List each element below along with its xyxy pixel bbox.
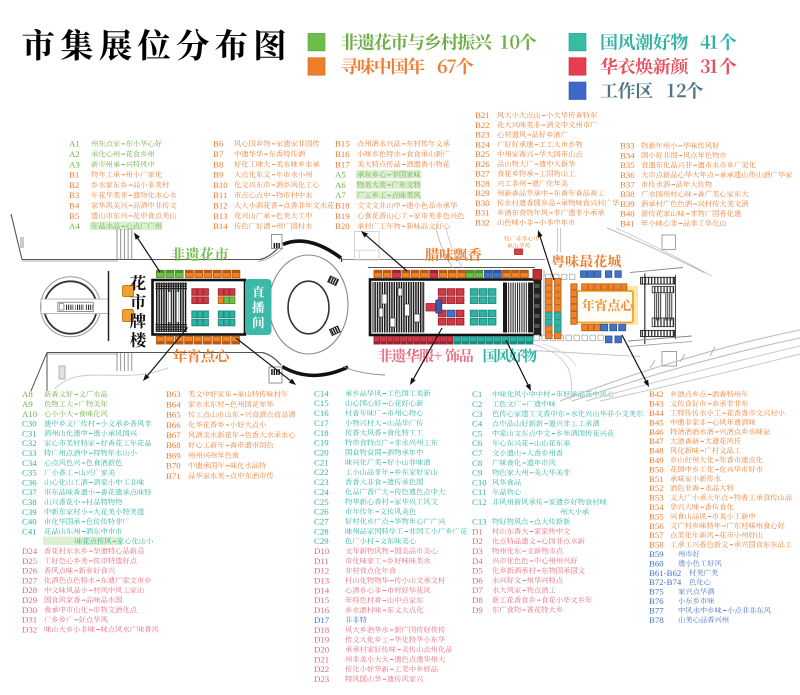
svg-text:C28: C28	[314, 526, 329, 536]
svg-text:B30: B30	[475, 198, 490, 208]
svg-text:B70: B70	[166, 461, 181, 471]
svg-text:B27: B27	[475, 169, 490, 179]
svg-text:D11: D11	[314, 556, 329, 566]
svg-text:A5: A5	[335, 170, 346, 180]
svg-text:C27: C27	[314, 516, 329, 526]
svg-text:C33: C33	[22, 448, 37, 458]
svg-text:B9: B9	[213, 170, 224, 180]
svg-text:D25: D25	[22, 556, 38, 566]
svg-text:D3: D3	[472, 546, 483, 556]
svg-text:B31: B31	[475, 208, 490, 218]
svg-text:D31: D31	[22, 615, 37, 625]
svg-text:C39: C39	[22, 507, 37, 517]
svg-text:B3: B3	[69, 190, 80, 200]
svg-text:B19: B19	[335, 211, 350, 221]
svg-text:C32: C32	[22, 438, 37, 448]
svg-text:B1: B1	[69, 170, 79, 180]
svg-text:B2: B2	[69, 180, 79, 190]
svg-text:C17: C17	[314, 418, 329, 428]
svg-text:D13: D13	[314, 576, 330, 586]
svg-text:A3: A3	[69, 159, 80, 169]
svg-text:D24: D24	[22, 546, 38, 556]
svg-text:D14: D14	[314, 585, 330, 595]
svg-text:D20: D20	[314, 645, 330, 655]
svg-text:B41: B41	[620, 218, 635, 228]
svg-text:C20: C20	[314, 448, 329, 458]
svg-text:D21: D21	[314, 654, 329, 664]
svg-text:B14: B14	[213, 221, 228, 231]
svg-text:B39: B39	[620, 199, 635, 209]
svg-text:C22: C22	[314, 467, 329, 477]
svg-text:C8: C8	[472, 458, 483, 468]
svg-text:D18: D18	[314, 625, 330, 635]
svg-text:C31: C31	[22, 428, 37, 438]
svg-text:A7: A7	[335, 190, 346, 200]
svg-text:D26: D26	[22, 566, 38, 576]
svg-text:D8: D8	[472, 595, 483, 605]
svg-text:C41: C41	[22, 526, 37, 536]
svg-text:B12: B12	[213, 201, 228, 211]
svg-text:C21: C21	[314, 457, 329, 467]
svg-text:C12: C12	[472, 497, 487, 507]
svg-text:B37: B37	[620, 180, 635, 190]
svg-text:B64: B64	[166, 399, 181, 409]
svg-text:B33: B33	[620, 141, 635, 151]
svg-text:B16: B16	[335, 149, 350, 159]
svg-text:B66: B66	[166, 420, 181, 430]
svg-text:B28: B28	[475, 179, 490, 189]
svg-text:A9: A9	[22, 399, 33, 409]
svg-text:C38: C38	[22, 497, 37, 507]
svg-text:D23: D23	[314, 674, 330, 684]
svg-text:D16: D16	[314, 605, 330, 615]
svg-text:A1: A1	[69, 139, 80, 149]
svg-text:D7: D7	[472, 585, 483, 595]
svg-text:C10: C10	[472, 477, 487, 487]
svg-text:C2: C2	[472, 399, 482, 409]
svg-text:B25: B25	[475, 149, 490, 159]
svg-text:C35: C35	[22, 468, 37, 478]
svg-text:D19: D19	[314, 635, 330, 645]
svg-text:B29: B29	[475, 188, 490, 198]
svg-text:C14: C14	[314, 388, 329, 398]
svg-text:C30: C30	[22, 419, 37, 429]
svg-text:B8: B8	[213, 159, 224, 169]
svg-text:B69: B69	[166, 450, 181, 460]
svg-text:D9: D9	[472, 605, 483, 615]
svg-text:B68: B68	[166, 440, 181, 450]
svg-text:C26: C26	[314, 507, 329, 517]
svg-text:B17: B17	[335, 159, 350, 169]
svg-text:A2: A2	[69, 149, 80, 159]
svg-text:B18: B18	[335, 201, 350, 211]
svg-text:C24: C24	[314, 487, 329, 497]
svg-text:B26: B26	[475, 159, 490, 169]
svg-text:C7: C7	[472, 448, 483, 458]
svg-text:B11: B11	[213, 190, 227, 200]
svg-text:B78: B78	[649, 615, 664, 625]
svg-text:B71: B71	[166, 471, 181, 481]
svg-text:A10: A10	[22, 409, 38, 419]
svg-text:C13: C13	[472, 517, 487, 527]
svg-text:A6: A6	[335, 180, 346, 190]
svg-text:C40: C40	[22, 517, 37, 527]
svg-text:D17: D17	[314, 615, 330, 625]
svg-text:B15: B15	[335, 139, 350, 149]
svg-text:D4: D4	[472, 556, 483, 566]
svg-text:B4: B4	[69, 201, 80, 211]
svg-text:B7: B7	[213, 149, 224, 159]
svg-text:C16: C16	[314, 408, 329, 418]
svg-text:B22: B22	[475, 120, 490, 130]
svg-text:B36: B36	[620, 170, 635, 180]
svg-text:D12: D12	[314, 566, 329, 576]
svg-text:D32: D32	[22, 624, 37, 634]
svg-text:C25: C25	[314, 497, 329, 507]
svg-text:C23: C23	[314, 477, 329, 487]
svg-text:C5: C5	[472, 428, 483, 438]
svg-text:D5: D5	[472, 566, 483, 576]
svg-text:C29: C29	[314, 536, 329, 546]
svg-text:B34: B34	[620, 150, 635, 160]
svg-text:B35: B35	[620, 160, 635, 170]
svg-text:D28: D28	[22, 585, 38, 595]
svg-text:C37: C37	[22, 487, 37, 497]
svg-text:D29: D29	[22, 595, 38, 605]
svg-text:B6: B6	[213, 139, 224, 149]
svg-text:B67: B67	[166, 430, 181, 440]
svg-text:C18: C18	[314, 428, 329, 438]
svg-text:B10: B10	[213, 180, 228, 190]
svg-text:B13: B13	[213, 211, 228, 221]
svg-text:B65: B65	[166, 410, 181, 420]
svg-text:C4: C4	[472, 419, 483, 429]
svg-text:C11: C11	[472, 487, 486, 497]
svg-text:D1: D1	[472, 526, 483, 536]
svg-text:C36: C36	[22, 477, 37, 487]
svg-text:D15: D15	[314, 595, 330, 605]
svg-text:B21: B21	[475, 110, 490, 120]
svg-text:C3: C3	[472, 409, 483, 419]
svg-text:C34: C34	[22, 458, 37, 468]
svg-text:B38: B38	[620, 189, 635, 199]
svg-text:B63: B63	[166, 389, 181, 399]
svg-text:D22: D22	[314, 664, 329, 674]
svg-text:C1: C1	[472, 389, 482, 399]
svg-text:D30: D30	[22, 605, 38, 615]
svg-text:C15: C15	[314, 398, 329, 408]
svg-text:B5: B5	[69, 211, 80, 221]
svg-text:B23: B23	[475, 130, 490, 140]
svg-text:B40: B40	[620, 209, 635, 219]
svg-text:D27: D27	[22, 575, 38, 585]
svg-text:D2: D2	[472, 536, 483, 546]
svg-text:B24: B24	[475, 140, 490, 150]
svg-text:C6: C6	[472, 438, 483, 448]
svg-text:B20: B20	[335, 221, 350, 231]
svg-text:B32: B32	[475, 218, 490, 228]
svg-text:D10: D10	[314, 546, 330, 556]
svg-text:C19: C19	[314, 438, 329, 448]
svg-text:A4: A4	[69, 221, 80, 231]
svg-text:C9: C9	[472, 468, 483, 478]
svg-text:D6: D6	[472, 575, 483, 585]
